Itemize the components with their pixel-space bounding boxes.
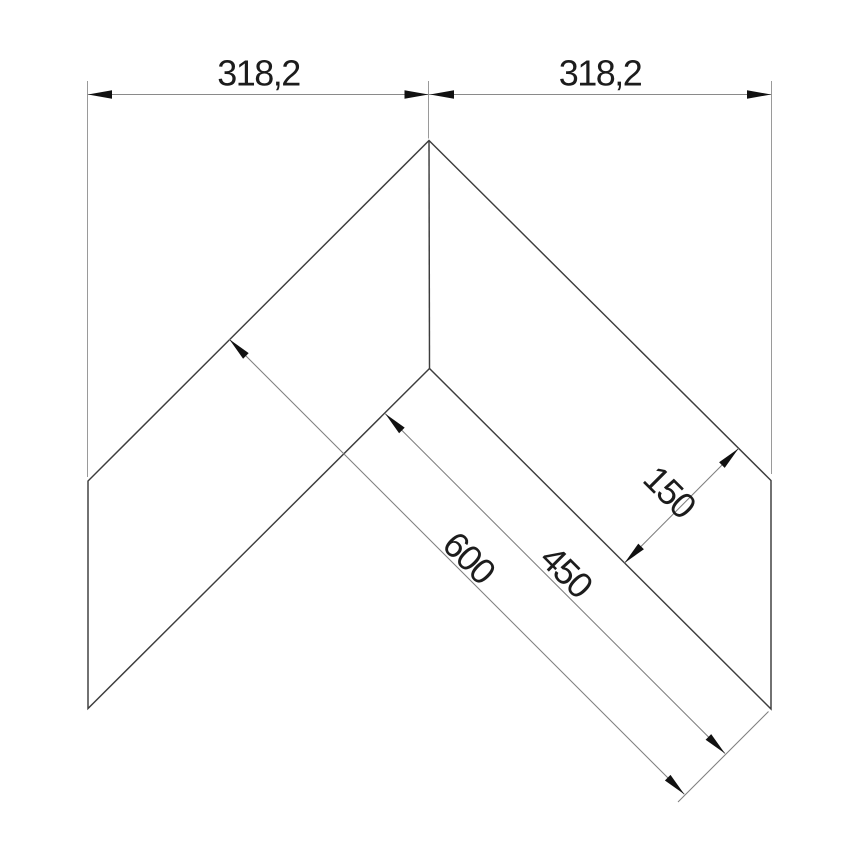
svg-text:318,2: 318,2	[559, 53, 642, 94]
svg-text:318,2: 318,2	[217, 53, 300, 94]
